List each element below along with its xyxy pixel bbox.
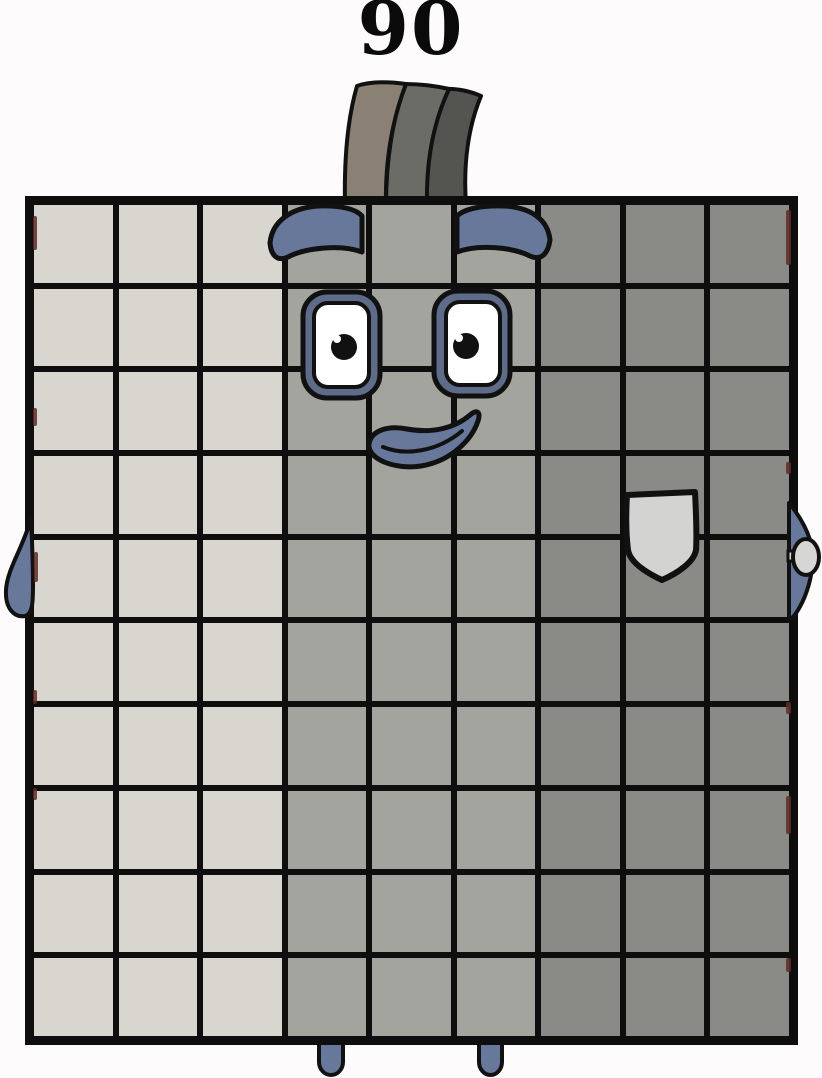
- grid-cell: [457, 791, 536, 869]
- grid-cell: [34, 289, 113, 367]
- grid-cell: [203, 456, 282, 534]
- grid-cell: [372, 958, 451, 1036]
- grid-cell: [710, 372, 789, 450]
- grid-cell: [288, 289, 367, 367]
- grid-cell: [626, 623, 705, 701]
- grid-cell: [119, 875, 198, 953]
- grid-cell: [119, 205, 198, 283]
- grid-cell: [372, 205, 451, 283]
- hat-icon: [345, 82, 481, 205]
- number-label: 90: [0, 0, 822, 66]
- grid-cell: [457, 289, 536, 367]
- grid-cell: [288, 456, 367, 534]
- grid-cell: [372, 707, 451, 785]
- grid-cell: [372, 540, 451, 618]
- grid-cell: [34, 623, 113, 701]
- grid-cell: [34, 372, 113, 450]
- grid-cell: [457, 540, 536, 618]
- grid-cell: [288, 623, 367, 701]
- grid-cell: [710, 791, 789, 869]
- hat-stripe-middle: [386, 84, 449, 205]
- grid-cell: [457, 372, 536, 450]
- grid-cell: [372, 456, 451, 534]
- grid-cell: [119, 289, 198, 367]
- grid-cell: [119, 456, 198, 534]
- grid-cell: [372, 623, 451, 701]
- grid-cell: [626, 456, 705, 534]
- grid-cell: [34, 791, 113, 869]
- grid-cell: [541, 456, 620, 534]
- hat-stripe-front: [345, 82, 406, 205]
- grid-cell: [710, 707, 789, 785]
- grid-cell: [288, 791, 367, 869]
- grid-cell: [457, 623, 536, 701]
- grid-cell: [626, 791, 705, 869]
- grid-cell: [541, 623, 620, 701]
- grid-cell: [372, 289, 451, 367]
- grid-cell: [541, 875, 620, 953]
- grid-cell: [710, 456, 789, 534]
- grid-cell: [34, 875, 113, 953]
- grid-cell: [626, 205, 705, 283]
- grid-cell: [710, 875, 789, 953]
- grid-cell: [119, 707, 198, 785]
- grid-cell: [372, 791, 451, 869]
- grid-cell: [710, 623, 789, 701]
- grid-cell: [203, 372, 282, 450]
- grid-cell: [541, 372, 620, 450]
- grid-cell: [288, 372, 367, 450]
- grid-cell: [372, 372, 451, 450]
- grid-cell: [457, 958, 536, 1036]
- grid-cell: [457, 205, 536, 283]
- grid-cell: [203, 875, 282, 953]
- grid-cell: [626, 372, 705, 450]
- hat-stripe-back: [426, 89, 481, 205]
- grid-cell: [541, 289, 620, 367]
- grid-cell: [119, 791, 198, 869]
- grid-cell: [119, 372, 198, 450]
- grid-cell: [626, 875, 705, 953]
- grid-cell: [288, 205, 367, 283]
- grid-cell: [710, 289, 789, 367]
- grid-cell: [541, 791, 620, 869]
- grid-cell: [710, 958, 789, 1036]
- grid-cell: [457, 456, 536, 534]
- grid-cell: [203, 623, 282, 701]
- grid-cell: [541, 205, 620, 283]
- grid-cell: [457, 875, 536, 953]
- grid-cell: [203, 958, 282, 1036]
- grid-cell: [541, 540, 620, 618]
- grid-cell: [541, 707, 620, 785]
- grid-cell: [288, 875, 367, 953]
- grid-cell: [34, 456, 113, 534]
- grid-cell: [34, 958, 113, 1036]
- number-grid: [25, 196, 798, 1045]
- grid-cell: [626, 707, 705, 785]
- grid-cell: [372, 875, 451, 953]
- grid-cell: [288, 707, 367, 785]
- grid-cell: [203, 707, 282, 785]
- grid-cell: [34, 540, 113, 618]
- grid-cell: [710, 540, 789, 618]
- grid-cell: [626, 289, 705, 367]
- grid-cell: [457, 707, 536, 785]
- grid-cell: [288, 540, 367, 618]
- grid-cell: [710, 205, 789, 283]
- grid-cell: [626, 958, 705, 1036]
- grid-cell: [34, 707, 113, 785]
- grid-cell: [119, 540, 198, 618]
- grid-cell: [203, 289, 282, 367]
- grid-cell: [119, 958, 198, 1036]
- grid-cell: [541, 958, 620, 1036]
- scene: 90: [0, 0, 822, 1078]
- grid-cell: [203, 540, 282, 618]
- grid-cell: [34, 205, 113, 283]
- grid-cell: [203, 205, 282, 283]
- grid-cell: [203, 791, 282, 869]
- grid-cell: [626, 540, 705, 618]
- grid-cell: [119, 623, 198, 701]
- grid-cell: [288, 958, 367, 1036]
